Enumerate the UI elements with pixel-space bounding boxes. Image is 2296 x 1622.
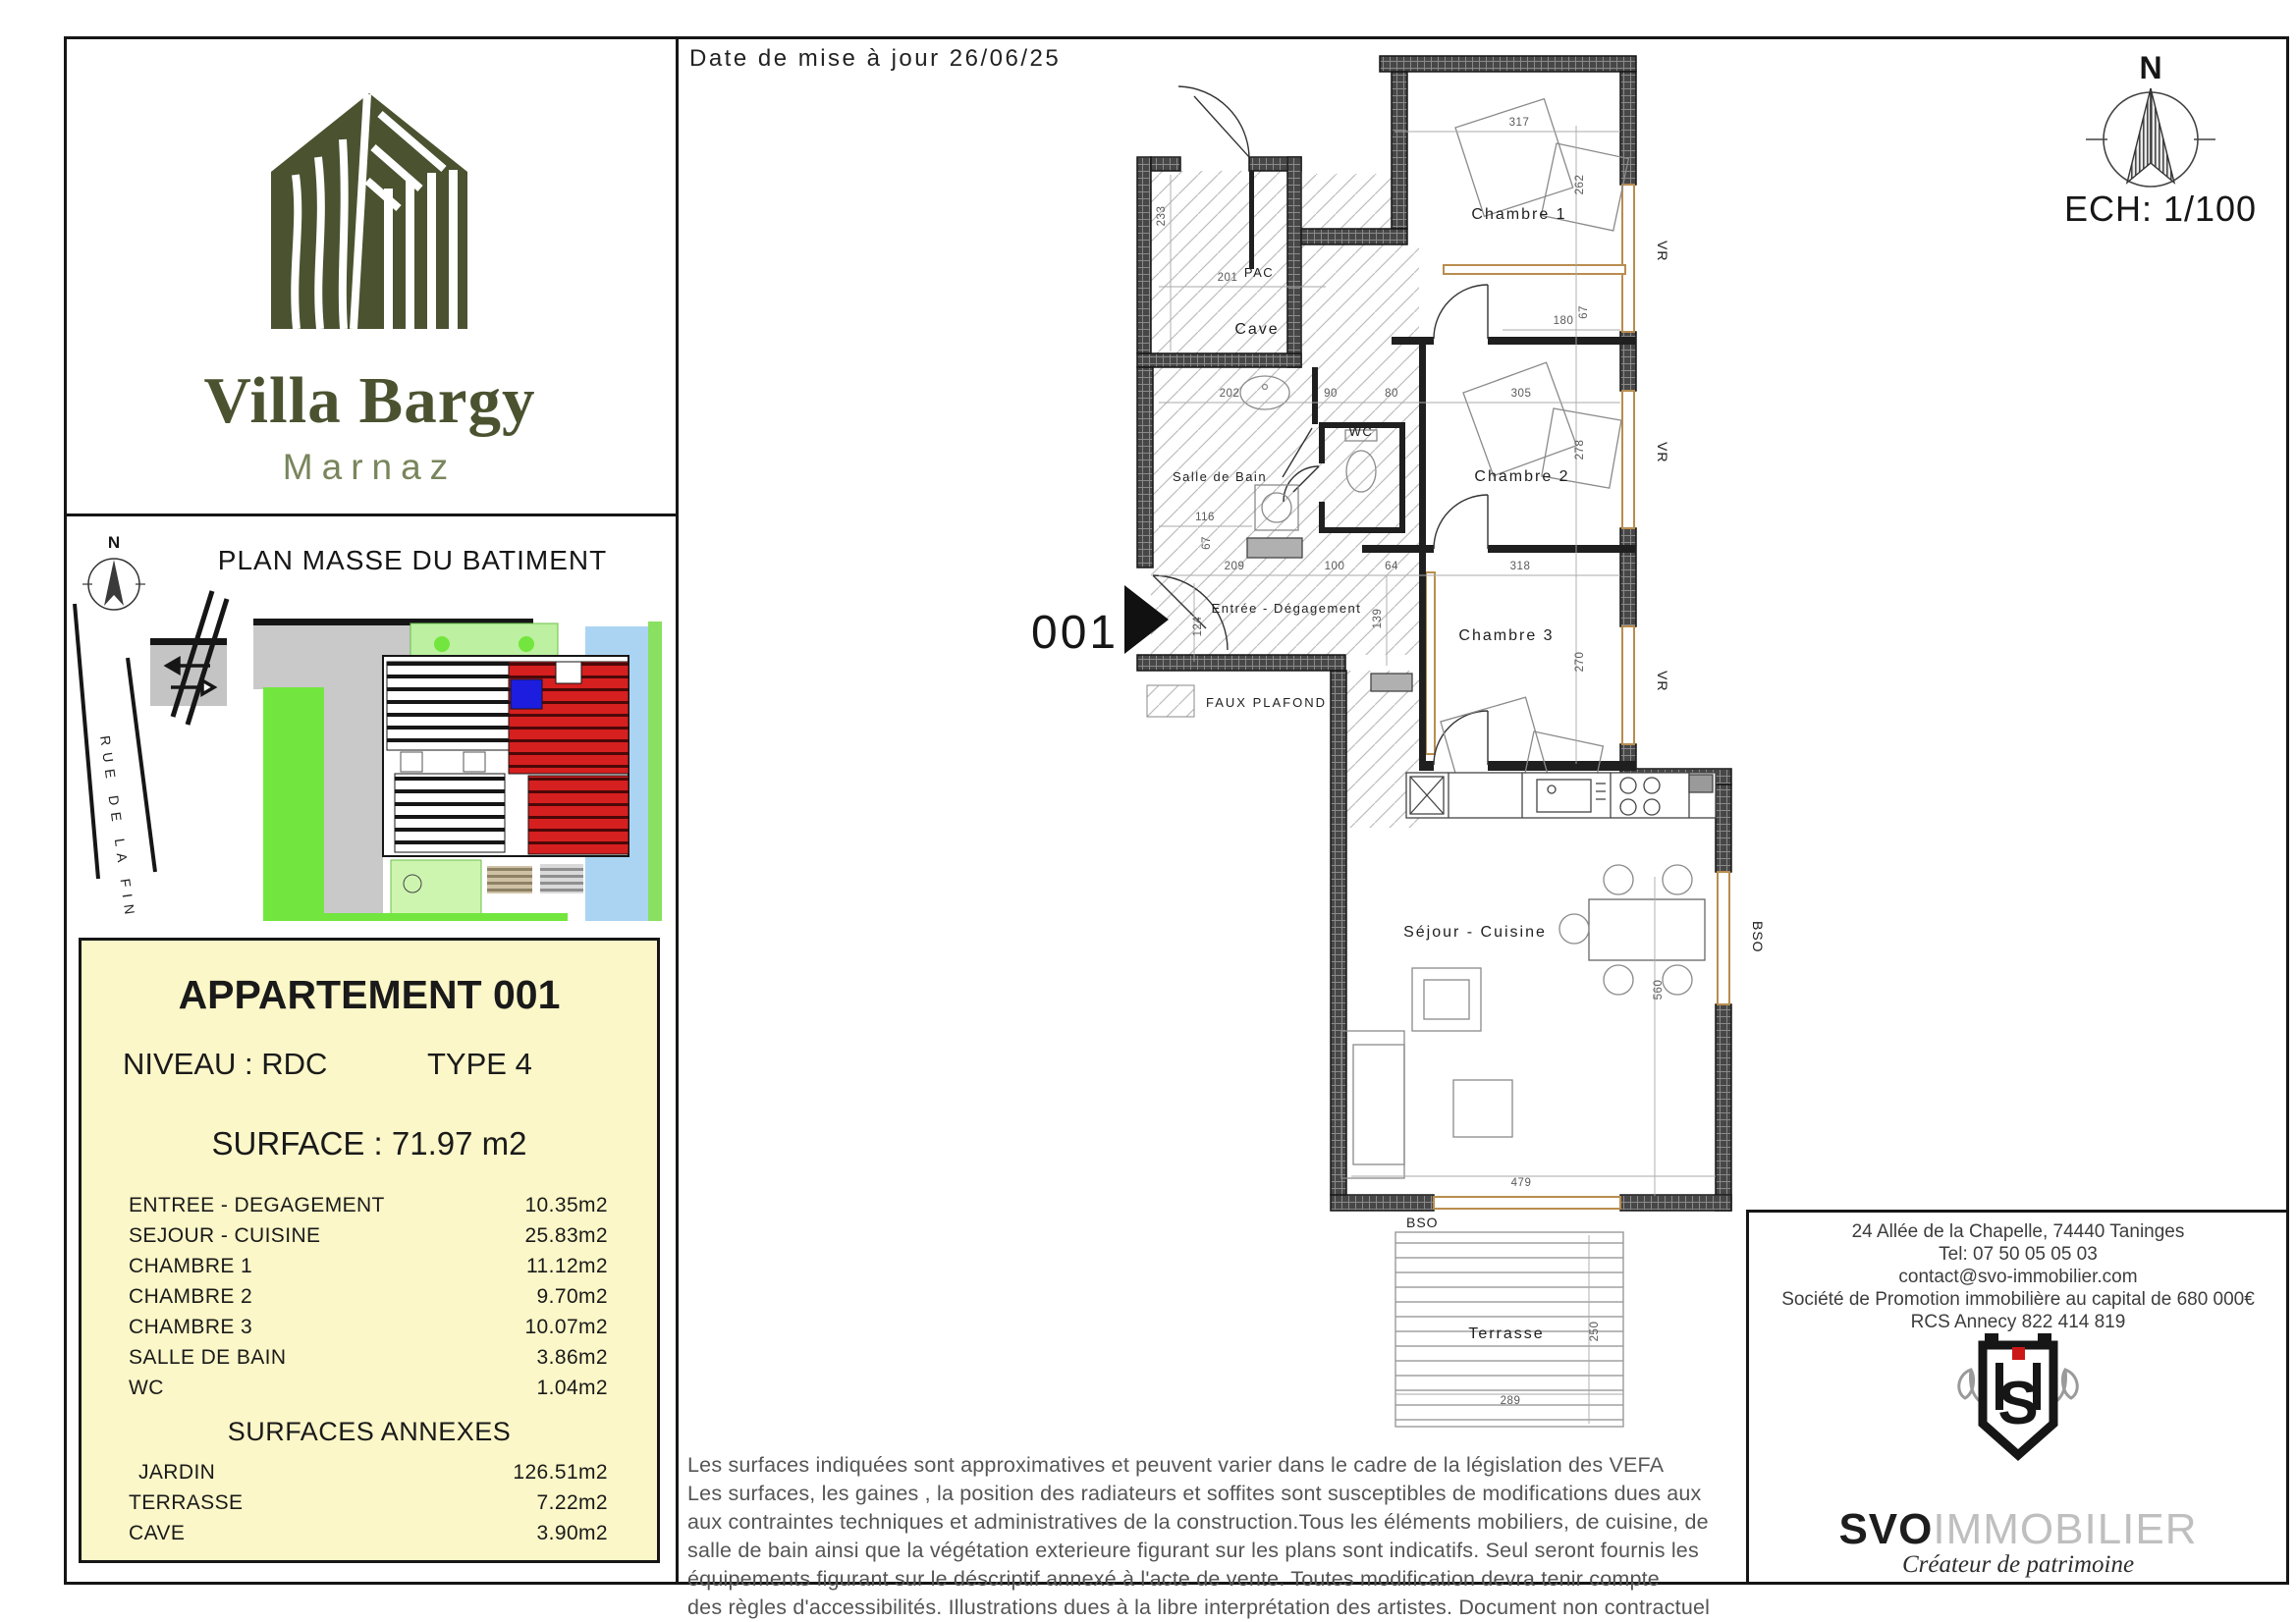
apartment-level: NIVEAU : RDC (123, 1047, 327, 1082)
room-area: 3.86m2 (537, 1346, 608, 1370)
site-lawn-strip (263, 687, 324, 918)
svo-logo: S (1949, 1325, 2087, 1507)
kitchen-counter (1406, 773, 1716, 818)
svg-text:305: 305 (1511, 388, 1532, 400)
svg-text:116: 116 (1195, 512, 1215, 523)
window-bso-bottom (1434, 1197, 1620, 1209)
site-path-strip (324, 687, 383, 918)
window-vr-2 (1622, 391, 1634, 528)
site-plan-drawing: RUE DE LA FIN (67, 589, 670, 923)
annex-label: TERRASSE (129, 1491, 243, 1515)
svg-text:139: 139 (1372, 609, 1384, 629)
agency-tagline: Créateur de patrimoine (1797, 1551, 2239, 1579)
svg-text:201: 201 (1218, 272, 1238, 284)
agency-company: Société de Promotion immobilière au capi… (1758, 1288, 2278, 1311)
svg-text:289: 289 (1501, 1395, 1521, 1407)
faux-plafond-hatch (1151, 171, 1419, 828)
room-label-sejour: Séjour - Cuisine (1403, 924, 1547, 941)
site-building (383, 656, 629, 856)
svg-text:317: 317 (1509, 117, 1530, 129)
floor-plan: 233 201 317 262 180 67 202 90 80 305 278… (1002, 37, 1777, 1451)
brand-city: Marnaz (64, 447, 676, 488)
site-deck-tan (487, 866, 532, 893)
svg-text:BSO: BSO (1750, 921, 1766, 953)
window-labels: VR VR VR BSO BSO (1406, 241, 1766, 1230)
annex-label: JARDIN (138, 1461, 215, 1485)
compass-north-label: N (2139, 50, 2161, 85)
svg-text:80: 80 (1385, 388, 1398, 400)
room-label-chambre2: Chambre 2 (1474, 468, 1569, 485)
scale-label: ECH: 1/100 (2052, 189, 2269, 230)
agency-email: contact@svo-immobilier.com (1758, 1266, 2278, 1288)
legal-disclaimer: Les surfaces indiquées sont approximativ… (687, 1451, 1743, 1622)
svg-text:VR: VR (1655, 442, 1670, 462)
room-label-entree: Entrée - Dégagement (1212, 601, 1362, 616)
svg-text:64: 64 (1385, 561, 1398, 572)
room-label: ENTREE - DEGAGEMENT (129, 1194, 385, 1217)
annex-row: CAVE3.90m2 (129, 1522, 608, 1547)
room-area: 25.83m2 (524, 1224, 608, 1248)
room-label-terrasse: Terrasse (1468, 1325, 1544, 1342)
door-gaps (1434, 335, 1488, 773)
svg-text:250: 250 (1589, 1322, 1601, 1342)
chair-icon (1604, 865, 1633, 894)
svg-text:180: 180 (1554, 315, 1574, 327)
logo-box-divider (64, 514, 679, 516)
logo-monogram: S (1997, 1370, 2038, 1437)
street-name: RUE DE LA FIN (97, 734, 138, 922)
brand-name: Villa Bargy (64, 363, 676, 439)
room-label-cave: Cave (1234, 321, 1279, 338)
window-vr-3 (1622, 626, 1634, 744)
surface-row: SALLE DE BAIN3.86m2 (129, 1346, 608, 1372)
door-chambre3 (1434, 711, 1488, 765)
annex-area: 3.90m2 (537, 1522, 608, 1545)
svg-text:202: 202 (1220, 388, 1240, 400)
logo-shield: S (1983, 1333, 2053, 1455)
annexes-title: SURFACES ANNEXES (82, 1417, 657, 1447)
contact-box-top-line (1746, 1210, 2289, 1213)
svg-text:233: 233 (1156, 206, 1168, 227)
svg-text:90: 90 (1324, 388, 1338, 400)
svg-text:209: 209 (1225, 561, 1245, 572)
logo-red-square (2012, 1347, 2025, 1360)
room-label-sdb: Salle de Bain (1173, 469, 1267, 484)
dining-table-icon (1589, 899, 1705, 960)
site-driveway-entry (150, 645, 227, 706)
room-area: 1.04m2 (537, 1377, 608, 1400)
room-label-chambre3: Chambre 3 (1458, 627, 1554, 644)
north-compass: N (2072, 49, 2229, 196)
room-area: 10.35m2 (524, 1194, 608, 1217)
svg-text:560: 560 (1653, 980, 1665, 1000)
armchair-icon (1412, 968, 1481, 1031)
svg-text:479: 479 (1511, 1177, 1532, 1189)
door-chambre1 (1434, 285, 1488, 339)
radiator-icon (1247, 538, 1302, 558)
agency-address: 24 Allée de la Chapelle, 74440 Taninges (1758, 1220, 2278, 1243)
compass-needle-left (2127, 88, 2151, 183)
left-column-divider (676, 36, 679, 1585)
apartment-type: TYPE 4 (427, 1047, 532, 1082)
site-deck-gray (540, 864, 583, 893)
svg-text:VR: VR (1655, 671, 1670, 691)
apartment-surface: SURFACE : 71.97 m2 (82, 1125, 657, 1162)
svg-text:318: 318 (1510, 561, 1531, 572)
room-area: 10.07m2 (524, 1316, 608, 1339)
window-bso-right (1718, 872, 1729, 1004)
annex-row: TERRASSE7.22m2 (129, 1491, 608, 1517)
surface-row: WC1.04m2 (129, 1377, 608, 1402)
agency-phone: Tel: 07 50 05 05 03 (1758, 1243, 2278, 1266)
room-area: 11.12m2 (526, 1255, 608, 1278)
site-lawn-bottom (263, 913, 568, 921)
room-label-pac: PAC (1244, 265, 1274, 280)
room-label: SALLE DE BAIN (129, 1346, 286, 1370)
surface-row: CHAMBRE 310.07m2 (129, 1316, 608, 1341)
unit-number: 001 (1031, 607, 1119, 659)
svg-text:67: 67 (1201, 536, 1213, 550)
apartment-info-box: APPARTEMENT 001 NIVEAU : RDC TYPE 4 SURF… (79, 938, 660, 1563)
svg-text:BSO: BSO (1406, 1215, 1439, 1230)
door-cave (1178, 86, 1249, 157)
faux-plafond-legend: FAUX PLAFOND (1147, 685, 1327, 717)
room-label: CHAMBRE 2 (129, 1285, 252, 1309)
room-label: WC (129, 1377, 164, 1400)
room-label-wc: WC (1349, 424, 1374, 439)
sofa-icon (1341, 1031, 1404, 1178)
site-plan-title: PLAN MASSE DU BATIMENT (157, 545, 668, 576)
svg-text:VR: VR (1655, 241, 1670, 261)
site-green-edge (648, 622, 662, 921)
svg-text:262: 262 (1574, 175, 1586, 195)
svg-text:278: 278 (1574, 440, 1586, 460)
surface-row: ENTREE - DEGAGEMENT10.35m2 (129, 1194, 608, 1219)
svg-text:67: 67 (1578, 305, 1590, 319)
room-label: CHAMBRE 1 (129, 1255, 252, 1278)
apartment-title: APPARTEMENT 001 (82, 972, 657, 1018)
annex-row: JARDIN126.51m2 (138, 1461, 608, 1487)
door-chambre2 (1434, 495, 1488, 549)
agency-name-main: SVO (1838, 1505, 1933, 1553)
annex-label: CAVE (129, 1522, 185, 1545)
villa-bargy-logo (251, 79, 487, 339)
svg-text:100: 100 (1325, 561, 1345, 572)
room-label-chambre1: Chambre 1 (1471, 206, 1566, 223)
bed-chambre2 (1463, 362, 1576, 475)
agency-contact: 24 Allée de la Chapelle, 74440 Taninges … (1758, 1220, 2278, 1333)
surface-row: SEJOUR - CUISINE25.83m2 (129, 1224, 608, 1250)
unit-marker: 001 (1031, 585, 1169, 659)
agency-name-suffix: IMMOBILIER (1933, 1505, 2197, 1553)
annex-area: 7.22m2 (537, 1491, 608, 1515)
coffee-table-icon (1453, 1080, 1512, 1137)
annex-area: 126.51m2 (513, 1461, 608, 1485)
surface-row: CHAMBRE 29.70m2 (129, 1285, 608, 1311)
agency-name: SVOIMMOBILIER (1797, 1505, 2239, 1554)
closet-chambre1 (1444, 265, 1625, 274)
compass-needle-right (2151, 88, 2174, 183)
sheet-border-right (2286, 36, 2289, 1585)
room-area: 9.70m2 (537, 1285, 608, 1309)
svg-text:124: 124 (1192, 617, 1204, 637)
site-compass-north: N (108, 533, 120, 552)
svg-text:270: 270 (1574, 652, 1586, 673)
surface-row: CHAMBRE 111.12m2 (129, 1255, 608, 1280)
room-label: CHAMBRE 3 (129, 1316, 252, 1339)
closet-chambre3 (1426, 572, 1435, 754)
window-vr-1 (1622, 185, 1634, 332)
legend-label: FAUX PLAFOND (1206, 695, 1327, 710)
room-label: SEJOUR - CUISINE (129, 1224, 320, 1248)
